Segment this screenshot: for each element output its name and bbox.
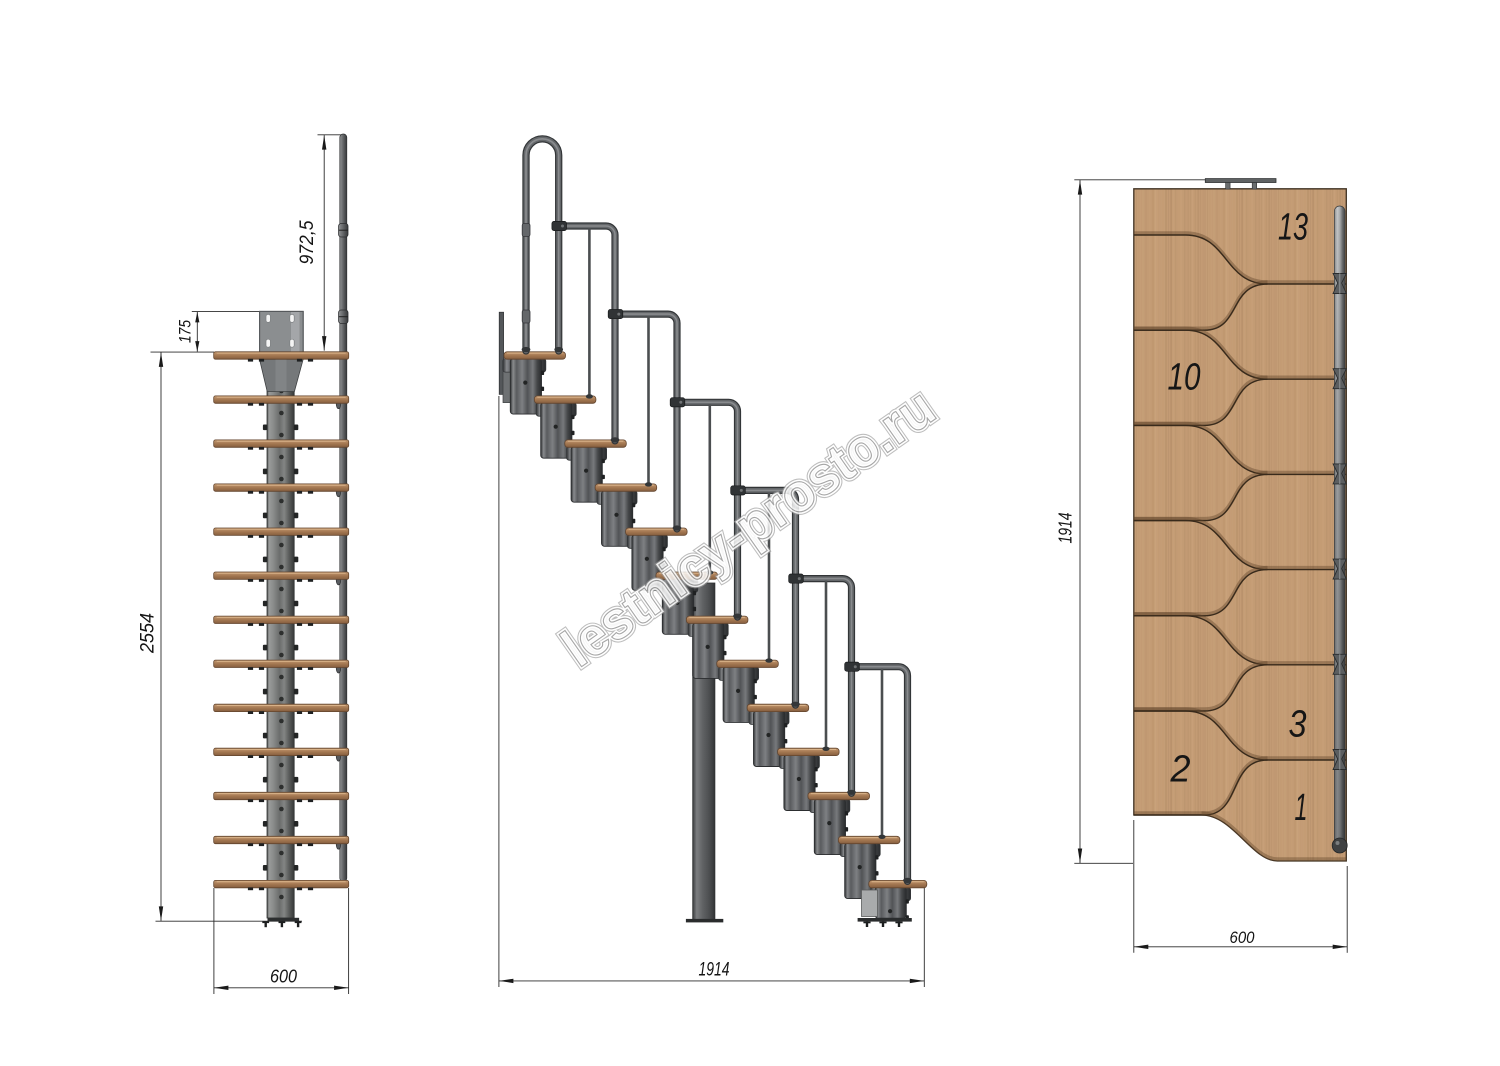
svg-text:175: 175 [177,319,195,343]
svg-text:600: 600 [1230,928,1255,947]
svg-text:3: 3 [1289,704,1307,746]
svg-text:1: 1 [1295,787,1308,829]
svg-text:10: 10 [1168,357,1201,399]
svg-text:1914: 1914 [699,960,730,981]
svg-text:2: 2 [1170,749,1191,791]
svg-text:2554: 2554 [138,613,159,654]
svg-text:1914: 1914 [1056,513,1076,544]
svg-text:972,5: 972,5 [297,220,318,264]
svg-text:600: 600 [270,967,297,987]
svg-text:13: 13 [1278,207,1308,249]
